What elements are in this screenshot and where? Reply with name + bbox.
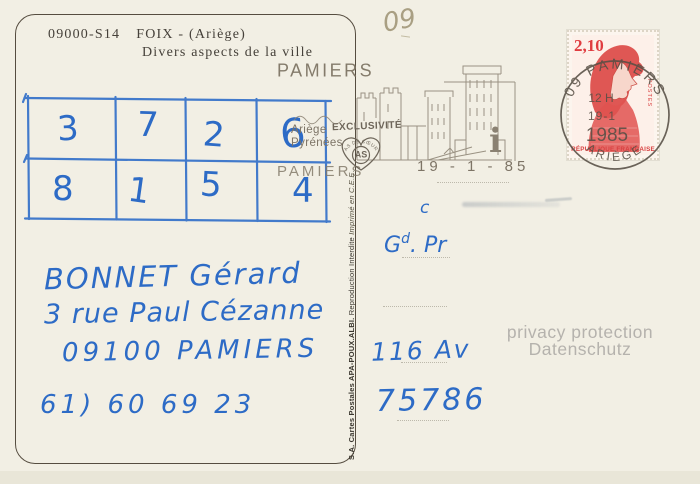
svg-text:09 PAMIERS: 09 PAMIERS	[561, 57, 668, 100]
handwritten-phone: 61) 60 69 23	[40, 392, 255, 418]
card-title: FOIX - (Ariège)	[136, 27, 246, 42]
pencil-note: 09	[381, 3, 419, 38]
publisher-name: S.A. Cartes Postales APA-POUX.ALBI.	[347, 318, 356, 460]
handwritten-street: 3 rue Paul Cézanne	[44, 297, 325, 329]
privacy-line2: Datenschutz	[460, 341, 700, 358]
cancel-day: 19-1	[588, 109, 616, 123]
address-dotted-line	[401, 362, 447, 363]
handwritten-name: BONNET Gérard	[44, 259, 302, 295]
publisher-printed-in: Imprimé en C.E.E.	[347, 170, 356, 235]
grid-cell-r2c1: 8	[52, 172, 74, 206]
note-gd-main: G	[384, 233, 401, 258]
cancel-hour: 12 H	[588, 91, 613, 105]
caption-line1: 09000-S14FOIX - (Ariège)	[48, 26, 313, 44]
handwritten-note-av: 116 Av	[371, 336, 471, 364]
circular-postmark: 09 PAMIERS ARIÈGE 12 H 19-1 1985	[555, 55, 677, 177]
grid-cell-r1c3: 2	[202, 117, 226, 152]
grid-cell-r1c1: 3	[56, 111, 79, 146]
card-reference: 09000-S14	[48, 27, 120, 42]
handwritten-note-gd-pr: Gd. Pr	[384, 232, 446, 257]
address-dotted-line	[402, 257, 450, 258]
grid-cell-r2c3: 5	[199, 167, 222, 202]
address-dotted-line	[383, 306, 447, 307]
publisher-imprint: S.A. Cartes Postales APA-POUX.ALBI. Repr…	[347, 170, 356, 460]
pencil-dash	[401, 35, 410, 37]
handwritten-note-c: c	[420, 200, 429, 217]
scan-edge	[0, 471, 700, 484]
note-gd-rest: . Pr	[410, 233, 446, 258]
cancel-year: 1985	[586, 125, 628, 146]
ink-smudge	[545, 197, 572, 202]
note-gd-sup: d	[401, 231, 410, 247]
postcard-back-scan: 09000-S14FOIX - (Ariège) Divers aspects …	[0, 0, 700, 484]
handwritten-city: 09100 PAMIERS	[62, 336, 319, 366]
address-dotted-line	[397, 420, 449, 421]
heart-center-text: AS	[355, 150, 368, 160]
publisher-rights: Reproduction Interdite	[347, 235, 356, 318]
stamp-value: 2,10	[574, 36, 604, 56]
grid-cell-r1c2: 7	[136, 108, 159, 143]
handwritten-note-number: 75786	[376, 385, 487, 417]
heart-icon: AS DE CŒUR AS	[335, 133, 387, 173]
printed-caption: 09000-S14FOIX - (Ariège) Divers aspects …	[48, 26, 313, 62]
address-dotted-line	[437, 182, 509, 183]
cancel-arc-top: 09 PAMIERS	[561, 57, 668, 100]
privacy-watermark: privacy protection Datenschutz	[460, 324, 700, 358]
ink-smudge	[462, 202, 560, 207]
